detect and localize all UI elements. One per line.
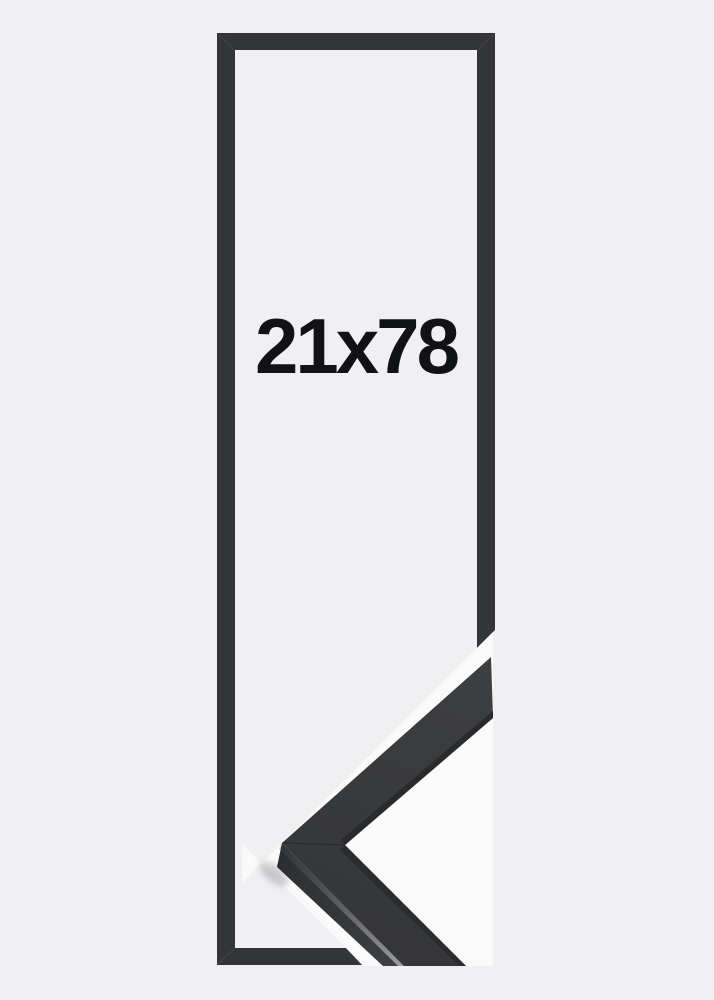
frame-outline-left-bar — [217, 33, 235, 965]
frame-outline-right-bar-cut — [477, 33, 495, 648]
frame-size-product-image: 21x78 — [0, 0, 714, 1000]
product-graphic: 21x78 — [0, 0, 714, 1000]
frame-outline-top-bar — [217, 33, 495, 50]
size-label: 21x78 — [255, 302, 458, 390]
frame-outline-bottom-bar-cut — [217, 948, 363, 965]
